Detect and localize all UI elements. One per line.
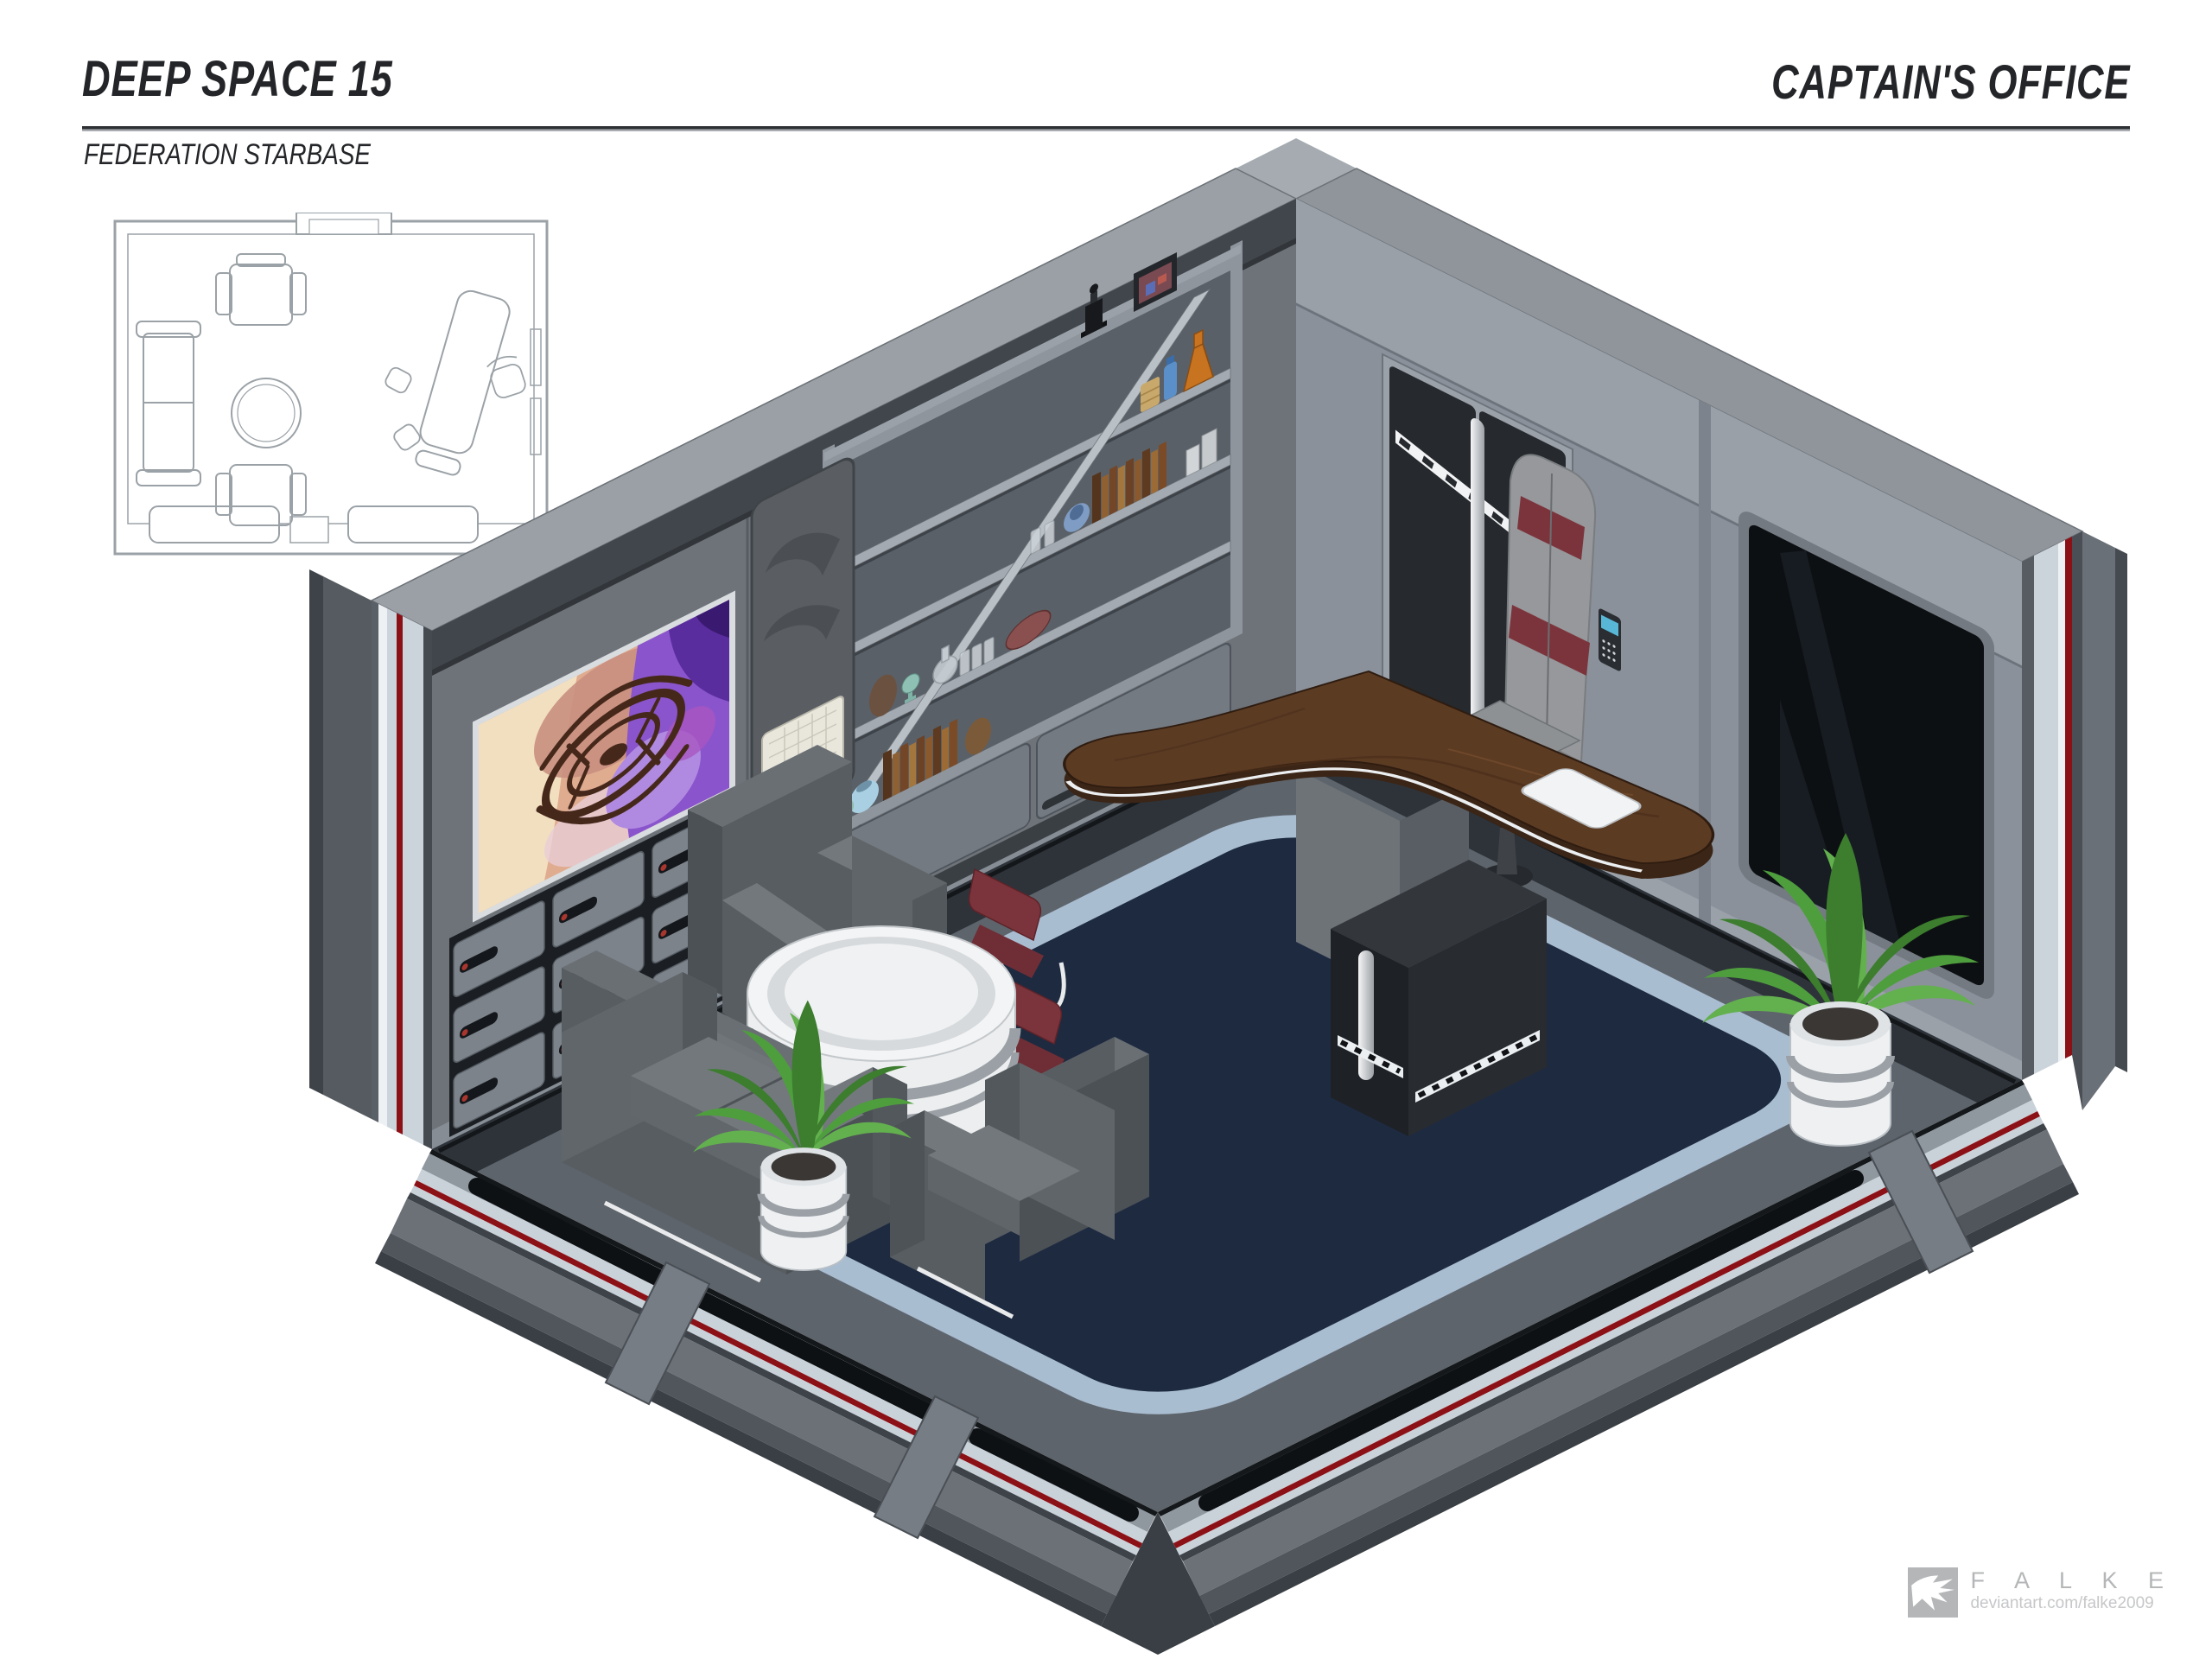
blue-bottle: [1164, 360, 1177, 402]
artist-name: F A L K E: [1970, 1567, 2176, 1594]
isometric-office-illustration: [0, 0, 2212, 1659]
drinking-glass: [1031, 527, 1040, 555]
drinking-glass: [972, 643, 982, 671]
drinking-glass: [960, 649, 969, 677]
left-wall-cutaway: [309, 569, 432, 1149]
drinking-glass: [1045, 520, 1054, 548]
door-silver-pill: [1471, 416, 1484, 760]
right-wall-cutaway: [2022, 531, 2127, 1110]
falke-logo: F A L K E deviantart.com/falke2009: [1908, 1567, 2176, 1618]
page: DEEP SPACE 15 FEDERATION STARBASE CAPTAI…: [0, 0, 2212, 1659]
falcon-icon: [1908, 1567, 1958, 1618]
door-keypad: [1599, 607, 1621, 672]
artist-url: deviantart.com/falke2009: [1970, 1594, 2176, 1613]
drinking-glass: [984, 637, 994, 664]
